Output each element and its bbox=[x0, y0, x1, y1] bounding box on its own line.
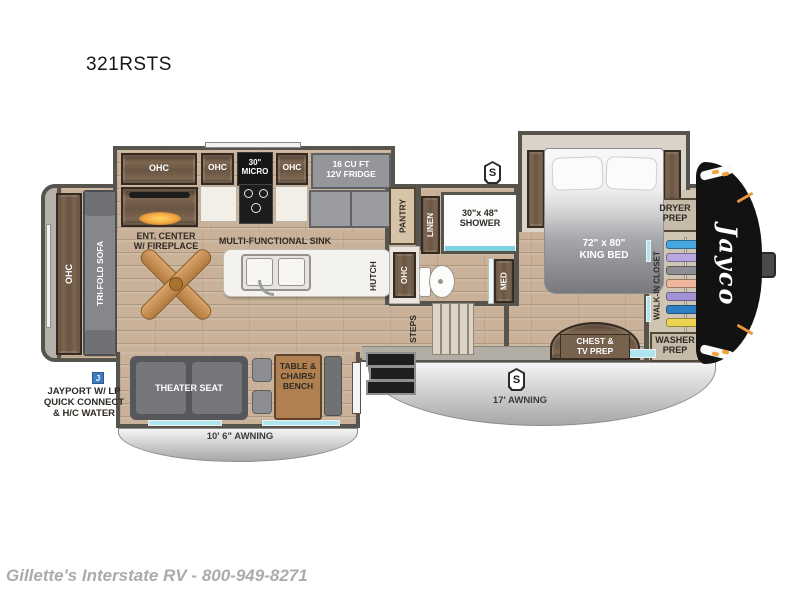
rear-window bbox=[46, 224, 51, 328]
dealer-footer: Gillette's Interstate RV - 800-949-8271 bbox=[6, 566, 308, 586]
slide-window-right bbox=[262, 420, 340, 426]
shower-glass bbox=[445, 246, 515, 251]
hutch-ohc-label: OHC bbox=[393, 252, 416, 298]
slide-window-left bbox=[148, 420, 222, 426]
ohc-right-label: OHC bbox=[276, 163, 308, 173]
steps-label: STEPS bbox=[406, 305, 420, 353]
dining-bench bbox=[324, 356, 342, 416]
rear-ohc-label: OHC bbox=[56, 193, 82, 355]
theater-seat-label: THEATER SEAT bbox=[130, 383, 248, 393]
awning-main-label: 17' AWNING bbox=[440, 396, 600, 407]
awning-rear-label: 10' 6" AWNING bbox=[160, 432, 320, 443]
hutch-label: HUTCH bbox=[366, 252, 380, 300]
dryer-prep-label: DRYER PREP bbox=[651, 203, 699, 224]
entry-door bbox=[352, 362, 361, 414]
pillow-left bbox=[551, 156, 603, 191]
fridge-label: 16 CU FT 12V FRIDGE bbox=[311, 160, 391, 180]
entry-step-3 bbox=[366, 380, 416, 395]
nightstand-left bbox=[527, 150, 545, 228]
awning-main-shape bbox=[368, 362, 716, 426]
jayport-badge: J bbox=[92, 372, 104, 384]
counter-left bbox=[200, 186, 237, 222]
page-title: 321RSTS bbox=[86, 54, 172, 76]
microwave-label: 30" MICRO bbox=[237, 158, 273, 176]
shower-label: 30"x 48" SHOWER bbox=[441, 208, 519, 229]
chest-tv-label: CHEST & TV PREP bbox=[560, 337, 630, 357]
ohc-large-label: OHC bbox=[121, 163, 197, 173]
interior-steps bbox=[432, 303, 474, 355]
fireplace-glow bbox=[139, 212, 181, 225]
fan-hub bbox=[169, 277, 183, 291]
sink-label: MULTI-FUNCTIONAL SINK bbox=[190, 236, 360, 246]
dining-chair-1 bbox=[252, 358, 272, 382]
ceiling-fan bbox=[130, 240, 222, 328]
walk-in-closet-label: WALK-IN CLOSET bbox=[650, 238, 664, 334]
safety-badge-bedroom: S bbox=[484, 161, 501, 184]
burner-3 bbox=[251, 203, 261, 213]
toilet-flush-dot bbox=[438, 279, 443, 284]
safety-badge-awning: S bbox=[508, 368, 525, 391]
sofa-armrest-top bbox=[85, 192, 115, 216]
safety-badge-bedroom-letter: S bbox=[486, 163, 499, 182]
king-bed-label: 72" x 80" KING BED bbox=[544, 238, 664, 261]
linen-label: LINEN bbox=[421, 196, 440, 254]
kitchen-slide-window bbox=[205, 142, 301, 148]
sofa-armrest-bottom bbox=[85, 330, 115, 354]
dining-table-label: TABLE & CHAIRS/ BENCH bbox=[274, 362, 322, 391]
sink-basin-right bbox=[278, 258, 305, 286]
burner-2 bbox=[259, 189, 268, 198]
pillow-right bbox=[605, 156, 657, 191]
ohc-left-label: OHC bbox=[201, 163, 234, 173]
entry-steps bbox=[364, 352, 416, 398]
entry-step-2 bbox=[369, 366, 416, 381]
burner-1 bbox=[244, 189, 253, 198]
fridge-door-split bbox=[350, 192, 352, 226]
jayport-label: JAYPORT W/ LP QUICK CONNECT & H/C WATER bbox=[36, 387, 132, 420]
washer-prep-label: WASHER PREP bbox=[650, 335, 700, 356]
med-label: MED bbox=[494, 259, 514, 303]
sofa-label: TRI-FOLD SOFA bbox=[83, 216, 117, 330]
safety-badge-awning-letter: S bbox=[510, 370, 523, 389]
counter-right bbox=[275, 186, 308, 222]
pantry-label: PANTRY bbox=[389, 187, 416, 245]
jayco-logo: Jayco bbox=[708, 208, 748, 324]
entry-step-1 bbox=[366, 352, 416, 367]
floorplan-page: 321RSTS Gillette's Interstate RV - 800-9… bbox=[0, 0, 800, 600]
tv-strip bbox=[129, 192, 190, 198]
dining-chair-2 bbox=[252, 390, 272, 414]
